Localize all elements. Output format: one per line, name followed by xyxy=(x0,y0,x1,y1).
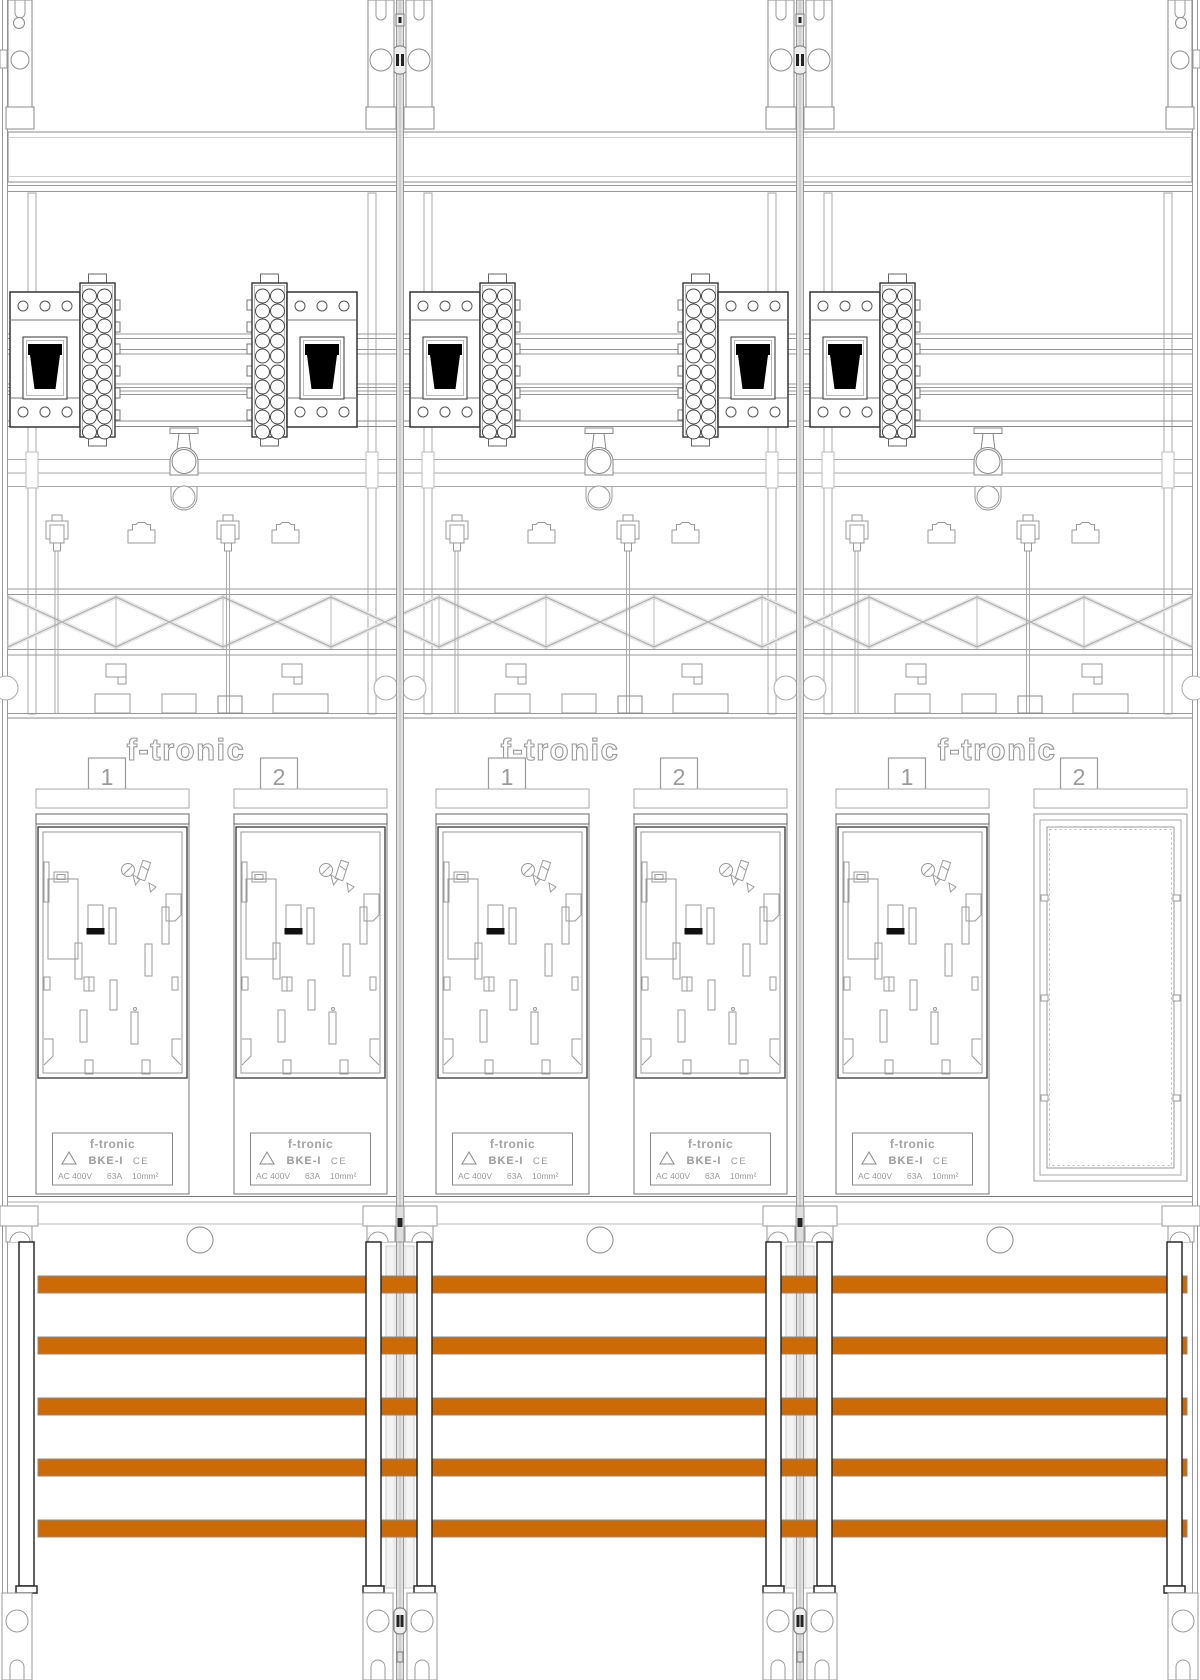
breaker-2 xyxy=(287,292,357,427)
label-cross-section: 10mm² xyxy=(132,1171,159,1181)
breaker-3 xyxy=(410,292,480,427)
terminal-block-2 xyxy=(247,274,287,446)
top-cross-rail xyxy=(8,132,1192,182)
svg-text:CE: CE xyxy=(331,1156,347,1167)
svg-text:63A: 63A xyxy=(907,1171,922,1181)
svg-text:BKE-I: BKE-I xyxy=(287,1155,322,1167)
left-hinge-tab xyxy=(0,50,7,68)
busbar-rail xyxy=(814,1242,835,1593)
terminal-block-4 xyxy=(678,274,718,446)
svg-text:BKE-I: BKE-I xyxy=(687,1155,722,1167)
breaker-4 xyxy=(718,292,788,427)
module-top-edges xyxy=(95,694,1128,713)
plug-jack xyxy=(617,515,639,551)
busbar-rail xyxy=(16,1242,37,1593)
panel-2-pos-2-number: 2 xyxy=(673,764,686,790)
terminal-block-5 xyxy=(880,274,920,446)
breaker-din-rails xyxy=(8,334,1192,395)
main-breakers xyxy=(10,274,920,446)
panel-branding: f-tronic f-tronic f-tronic 1 2 1 2 1 2 xyxy=(89,732,1098,795)
busbar-bracket-sep2 xyxy=(763,1206,837,1242)
post-sep1-right xyxy=(404,0,434,129)
busbar-rail xyxy=(363,1242,384,1593)
busbar-L1 xyxy=(38,1276,1187,1293)
bottom-post-sep2-left xyxy=(763,1593,793,1680)
post-left-edge xyxy=(6,0,34,129)
ce-mark: CE xyxy=(133,1156,149,1167)
meter-modules: f-tronic BKE-I CE AC 400V 63A 10mm² f-tr… xyxy=(36,789,1187,1194)
tag-flag xyxy=(682,664,702,684)
bottom-post-sep1-left xyxy=(363,1593,393,1680)
socket-jack xyxy=(928,523,955,544)
panel-3-pos-1-number: 1 xyxy=(901,764,914,790)
socket-jack xyxy=(128,523,155,544)
busbar-L3 xyxy=(38,1398,1187,1415)
busbar-bracket-right xyxy=(1162,1206,1200,1242)
svg-text:AC 400V: AC 400V xyxy=(656,1171,690,1181)
svg-text:10mm²: 10mm² xyxy=(330,1171,357,1181)
meter-cabinet-drawing: f-tronic f-tronic f-tronic 1 2 1 2 1 2 f… xyxy=(0,0,1200,1680)
busbar-L2 xyxy=(38,1337,1187,1354)
tag-flag xyxy=(1082,664,1102,684)
breaker-5 xyxy=(810,292,880,427)
busbars xyxy=(38,1276,1187,1537)
post-right-edge xyxy=(1166,0,1194,129)
meter-module: f-tronic BKE-I CE AC 400V 63A 10mm² xyxy=(836,789,989,1194)
meter-cables xyxy=(55,551,1030,713)
svg-text:CE: CE xyxy=(731,1156,747,1167)
panel-center-circles xyxy=(187,1227,1013,1253)
svg-text:AC 400V: AC 400V xyxy=(256,1171,290,1181)
top-mounting-posts xyxy=(0,0,1200,129)
panel-1-pos-1-number: 1 xyxy=(101,764,114,790)
meter-module: f-tronic BKE-I CE AC 400V 63A 10mm² xyxy=(436,789,589,1194)
bottom-post-sep1-right xyxy=(407,1593,437,1680)
pedestal-1 xyxy=(170,428,198,510)
plug-jack xyxy=(446,515,468,551)
terminal-block-3 xyxy=(480,274,520,446)
meter-module: f-tronic BKE-I CE AC 400V 63A 10mm² xyxy=(634,789,787,1194)
terminal-block-1 xyxy=(80,274,120,446)
label-current: 63A xyxy=(107,1171,122,1181)
svg-text:f-tronic: f-tronic xyxy=(890,1137,935,1151)
panel-2-pos-1-number: 1 xyxy=(501,764,514,790)
meter-module: f-tronic BKE-I CE AC 400V 63A 10mm² xyxy=(36,789,189,1194)
socket-jack xyxy=(672,523,699,544)
svg-text:f-tronic: f-tronic xyxy=(688,1137,733,1151)
panel-3-pos-2-number: 2 xyxy=(1073,764,1086,790)
empty-meter-position xyxy=(1034,789,1187,1181)
plug-jack xyxy=(846,515,868,551)
hood-hardware xyxy=(26,428,1174,713)
busbar-bracket-sep1 xyxy=(363,1206,437,1242)
socket-jack xyxy=(272,523,299,544)
busbar-rail xyxy=(763,1242,784,1593)
socket-jack xyxy=(1072,523,1099,544)
svg-text:f-tronic: f-tronic xyxy=(288,1137,333,1151)
busbar-bracket-left xyxy=(0,1206,38,1242)
pedestal-2 xyxy=(585,428,613,510)
plug-jack xyxy=(1017,515,1039,551)
svg-text:BKE-I: BKE-I xyxy=(889,1155,924,1167)
bottom-rod-connectors xyxy=(394,1608,806,1662)
panel-1-logo: f-tronic xyxy=(127,732,246,767)
busbar-rail xyxy=(414,1242,435,1593)
label-voltage: AC 400V xyxy=(58,1171,92,1181)
svg-text:63A: 63A xyxy=(305,1171,320,1181)
svg-text:CE: CE xyxy=(933,1156,949,1167)
svg-text:AC 400V: AC 400V xyxy=(458,1171,492,1181)
plug-jack xyxy=(217,515,239,551)
svg-text:BKE-I: BKE-I xyxy=(489,1155,524,1167)
busbar-rail xyxy=(1164,1242,1185,1593)
bottom-post-left xyxy=(2,1593,32,1680)
post-sep2-right xyxy=(804,0,834,129)
panel-1-pos-2-number: 2 xyxy=(273,764,286,790)
tag-flag xyxy=(282,664,302,684)
socket-jack xyxy=(528,523,555,544)
busbar-PE xyxy=(38,1520,1187,1537)
cabinet-cad-view: f-tronic f-tronic f-tronic 1 2 1 2 1 2 f… xyxy=(0,0,1200,1680)
breaker-1 xyxy=(10,292,80,427)
svg-text:CE: CE xyxy=(533,1156,549,1167)
busbar-section xyxy=(0,1206,1200,1680)
bottom-post-sep2-right xyxy=(807,1593,837,1680)
tag-flag xyxy=(506,664,526,684)
meter-module: f-tronic BKE-I CE AC 400V 63A 10mm² xyxy=(234,789,387,1194)
svg-text:10mm²: 10mm² xyxy=(532,1171,559,1181)
right-hinge-tab xyxy=(1193,50,1200,68)
post-sep2-left xyxy=(766,0,796,129)
tag-flag xyxy=(906,664,926,684)
svg-text:63A: 63A xyxy=(507,1171,522,1181)
svg-text:63A: 63A xyxy=(705,1171,720,1181)
svg-text:f-tronic: f-tronic xyxy=(490,1137,535,1151)
plug-jack xyxy=(46,515,68,551)
post-sep1-left xyxy=(366,0,396,129)
label-model: BKE-I xyxy=(89,1155,124,1167)
label-brand: f-tronic xyxy=(90,1137,135,1151)
svg-text:10mm²: 10mm² xyxy=(932,1171,959,1181)
bottom-post-right xyxy=(1168,1593,1198,1680)
pedestal-3 xyxy=(974,428,1002,510)
svg-text:AC 400V: AC 400V xyxy=(858,1171,892,1181)
tag-flag xyxy=(106,664,126,684)
cross-brace-truss xyxy=(8,595,1192,649)
busbar-N xyxy=(38,1459,1187,1476)
svg-text:10mm²: 10mm² xyxy=(730,1171,757,1181)
rod-connectors xyxy=(393,14,807,74)
panel-3-logo: f-tronic xyxy=(938,732,1057,767)
